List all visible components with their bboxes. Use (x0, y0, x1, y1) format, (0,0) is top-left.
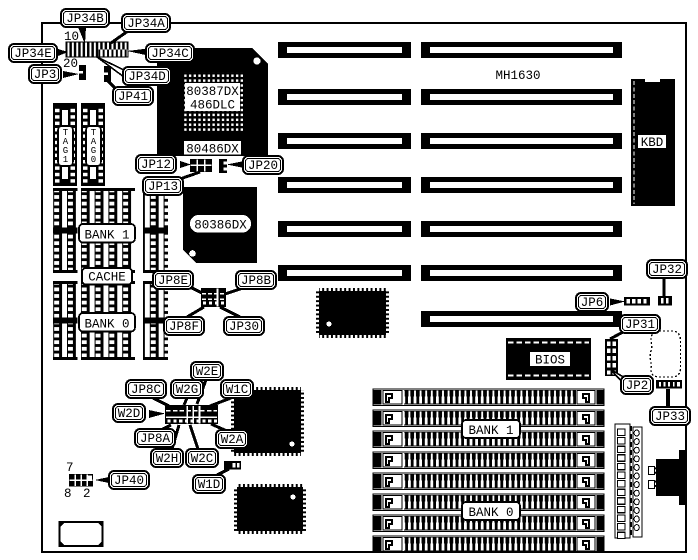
svg-text:JP41: JP41 (118, 90, 148, 104)
svg-text:JP8B: JP8B (241, 274, 272, 288)
svg-text:JP34A: JP34A (127, 17, 165, 31)
svg-text:JP8C: JP8C (131, 383, 161, 397)
svg-text:7: 7 (66, 461, 74, 475)
svg-text:JP34B: JP34B (66, 12, 104, 26)
svg-text:JP12: JP12 (141, 158, 171, 172)
svg-text:W1D: W1D (198, 478, 221, 492)
svg-text:BANK 0: BANK 0 (468, 506, 513, 520)
svg-text:BANK 1: BANK 1 (468, 424, 513, 438)
svg-text:W1C: W1C (226, 383, 249, 397)
svg-text:80486DX: 80486DX (186, 143, 239, 157)
svg-text:W2C: W2C (191, 452, 214, 466)
svg-text:JP34D: JP34D (128, 70, 166, 84)
svg-text:JP2: JP2 (626, 379, 649, 393)
svg-text:JP6: JP6 (581, 296, 604, 310)
svg-text:JP32: JP32 (652, 263, 682, 277)
svg-text:JP8F: JP8F (169, 320, 199, 334)
svg-text:W2A: W2A (221, 433, 244, 447)
svg-text:BIOS: BIOS (535, 354, 565, 368)
svg-text:W2H: W2H (156, 452, 179, 466)
svg-text:W2G: W2G (176, 383, 199, 397)
svg-text:1: 1 (63, 155, 68, 165)
svg-text:W2E: W2E (196, 365, 219, 379)
svg-text:JP8A: JP8A (140, 432, 171, 446)
svg-text:JP13: JP13 (148, 180, 178, 194)
svg-text:8: 8 (64, 487, 72, 501)
svg-text:JP33: JP33 (655, 410, 685, 424)
svg-text:20: 20 (63, 57, 78, 71)
svg-text:W2D: W2D (118, 407, 141, 421)
svg-text:JP34C: JP34C (151, 47, 189, 61)
svg-text:JP30: JP30 (229, 320, 259, 334)
svg-text:MH1630: MH1630 (495, 69, 540, 83)
svg-text:80387DX: 80387DX (186, 85, 239, 99)
svg-text:JP3: JP3 (34, 68, 57, 82)
svg-text:10: 10 (64, 30, 79, 44)
svg-text:2: 2 (83, 487, 91, 501)
svg-text:0: 0 (91, 155, 96, 165)
svg-text:JP20: JP20 (248, 159, 278, 173)
svg-text:BANK 1: BANK 1 (84, 229, 129, 243)
svg-text:KBD: KBD (641, 136, 664, 150)
svg-text:JP31: JP31 (625, 318, 655, 332)
svg-text:BANK 0: BANK 0 (84, 318, 129, 332)
svg-text:JP34E: JP34E (14, 47, 52, 61)
svg-text:JP8E: JP8E (158, 274, 188, 288)
svg-text:JP40: JP40 (114, 474, 144, 488)
svg-text:80386DX: 80386DX (194, 219, 247, 233)
svg-text:486DLC: 486DLC (190, 99, 235, 113)
svg-text:CACHE: CACHE (88, 271, 126, 285)
